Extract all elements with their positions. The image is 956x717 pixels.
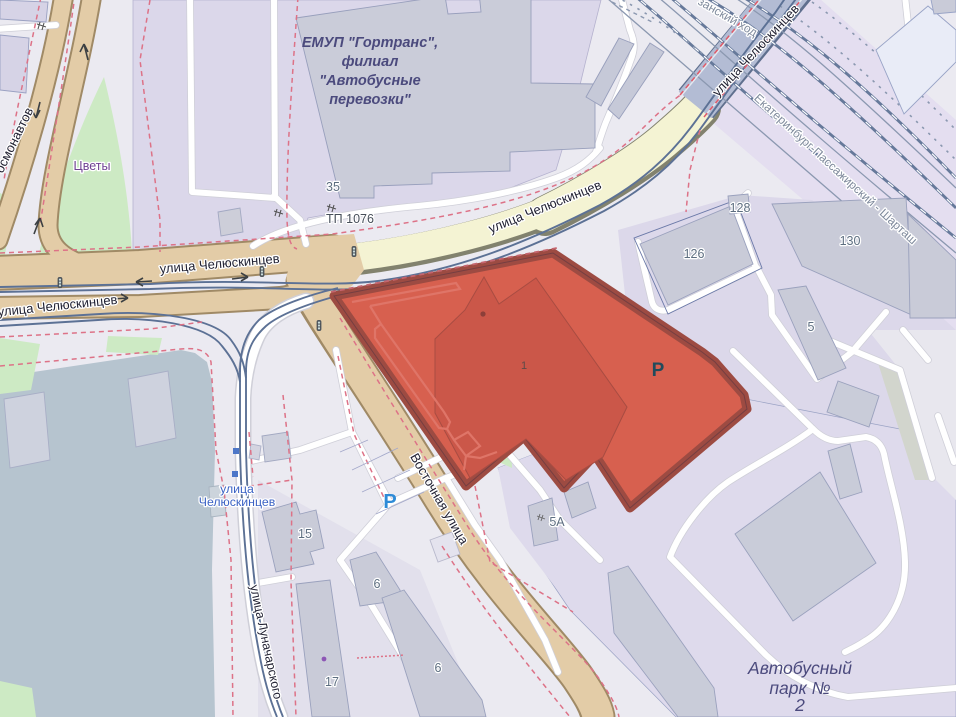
svg-text:128: 128 [730, 201, 751, 215]
svg-text:126: 126 [684, 247, 705, 261]
svg-text:Р: Р [383, 491, 396, 513]
svg-text:перевозки": перевозки" [329, 92, 412, 108]
svg-text:Р: Р [652, 360, 665, 381]
svg-text:улица: улица [220, 482, 254, 496]
svg-text:15: 15 [298, 527, 312, 541]
svg-text:"Автобусные: "Автобусные [319, 73, 420, 89]
svg-text:35: 35 [326, 180, 340, 194]
svg-text:5: 5 [808, 320, 815, 334]
svg-text:6: 6 [374, 577, 381, 591]
svg-text:Челюскинцев: Челюскинцев [199, 495, 276, 509]
svg-text:Цветы: Цветы [74, 159, 111, 173]
svg-text:6: 6 [435, 661, 442, 675]
svg-text:5А: 5А [549, 515, 565, 529]
svg-text:ЕМУП "Гортранс",: ЕМУП "Гортранс", [302, 35, 438, 51]
svg-text:Автобусный: Автобусный [747, 658, 852, 678]
svg-text:1: 1 [521, 360, 527, 372]
svg-text:филиал: филиал [342, 54, 399, 70]
svg-text:130: 130 [840, 234, 861, 248]
svg-text:17: 17 [325, 675, 339, 689]
svg-text:2: 2 [794, 695, 805, 715]
svg-text:ТП 1076: ТП 1076 [326, 212, 374, 226]
